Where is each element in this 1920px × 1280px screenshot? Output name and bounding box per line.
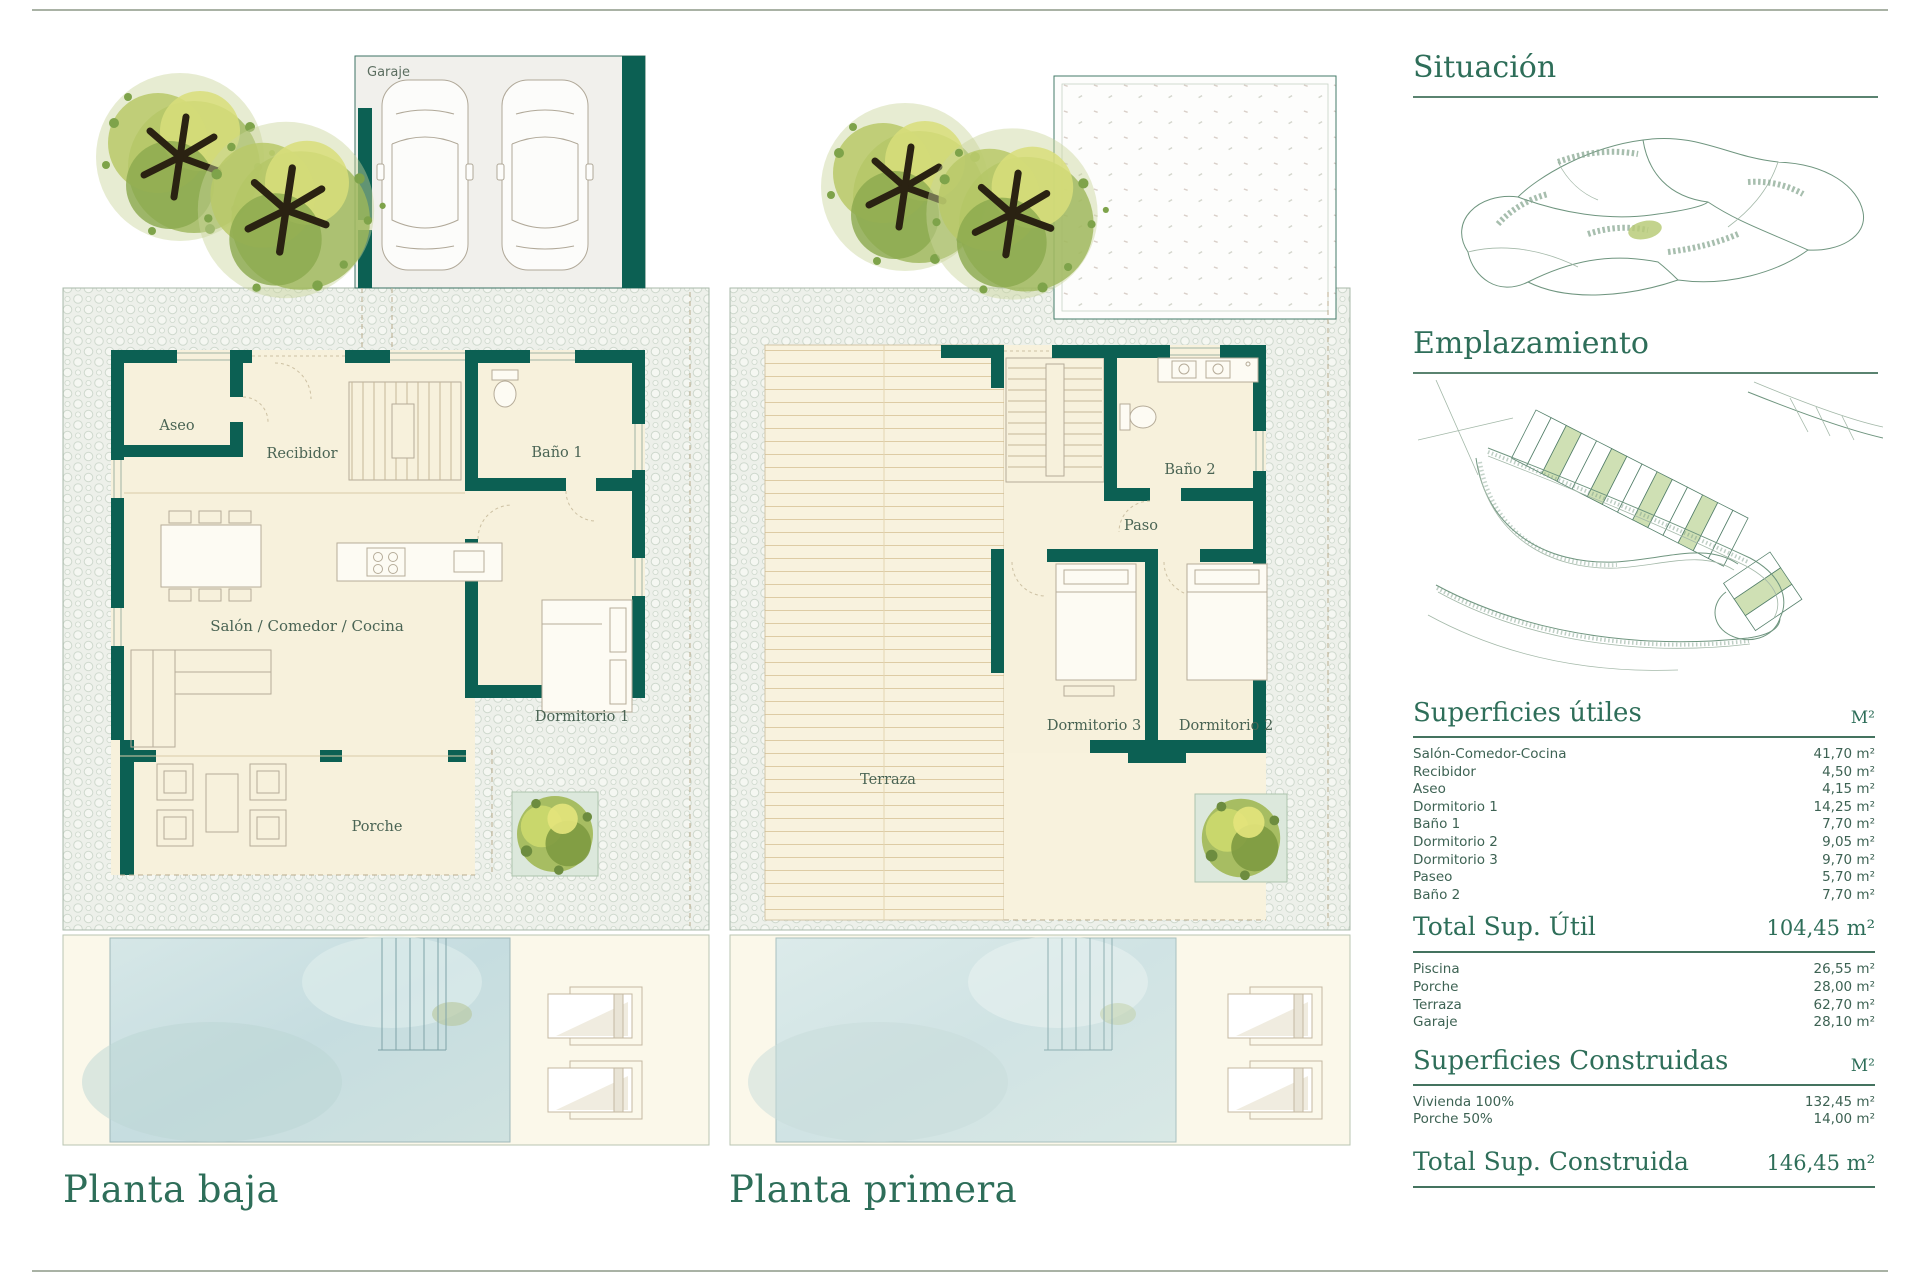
table-row: Baño 17,70 m² xyxy=(1413,816,1875,834)
table-row: Dormitorio 39,70 m² xyxy=(1413,852,1875,870)
brochure-page: Garaje xyxy=(0,0,1920,1280)
room-label-bano1: Baño 1 xyxy=(531,445,582,461)
superficies-construidas-rows: Vivienda 100%132,45 m² Porche 50%14,00 m… xyxy=(1413,1086,1875,1133)
first-floor-plan: Terraza Baño 2 Paso Dormitorio 3 Dormito… xyxy=(728,52,1378,1152)
table-row: Vivienda 100%132,45 m² xyxy=(1413,1094,1875,1112)
plan-title-first: Planta primera xyxy=(729,1168,1017,1211)
table-row: Dormitorio 29,05 m² xyxy=(1413,834,1875,852)
car-icon xyxy=(377,80,473,270)
lounger-icon xyxy=(1228,987,1322,1045)
situacion-map xyxy=(1408,102,1888,317)
room-label-dormitorio3: Dormitorio 3 xyxy=(1047,718,1141,734)
table-row: Porche28,00 m² xyxy=(1413,979,1875,997)
emplazamiento-title: Emplazamiento xyxy=(1413,326,1649,361)
first-pool-area xyxy=(730,935,1350,1145)
table-row: Porche 50%14,00 m² xyxy=(1413,1111,1875,1129)
ground-floor-plan: Garaje xyxy=(62,52,712,1152)
lounger-icon xyxy=(548,1061,642,1119)
situacion-rule xyxy=(1413,96,1878,98)
room-label-dormitorio2: Dormitorio 2 xyxy=(1179,718,1273,734)
surface-tables: Superficies útiles M² Salón-Comedor-Coci… xyxy=(1413,698,1875,1188)
emplazamiento-rule xyxy=(1413,372,1878,374)
room-label-paso: Paso xyxy=(1124,518,1158,534)
table-row: Paseo5,70 m² xyxy=(1413,869,1875,887)
situacion-title: Situación xyxy=(1413,50,1556,85)
table-row: Recibidor4,50 m² xyxy=(1413,764,1875,782)
top-rule xyxy=(32,9,1888,11)
table-row: Salón-Comedor-Cocina41,70 m² xyxy=(1413,746,1875,764)
total-sup-util: Total Sup. Útil 104,45 m² xyxy=(1413,908,1875,953)
superficies-utiles-title: Superficies útiles xyxy=(1413,698,1642,728)
garage-roof xyxy=(1054,76,1336,319)
table-row: Garaje28,10 m² xyxy=(1413,1014,1875,1032)
room-label-recibidor: Recibidor xyxy=(266,446,337,462)
table-row: Dormitorio 114,25 m² xyxy=(1413,799,1875,817)
superficies-construidas-title: Superficies Construidas xyxy=(1413,1046,1728,1076)
car-icon xyxy=(497,80,593,270)
emplazamiento-map xyxy=(1418,380,1883,675)
superficies-utiles-header: Superficies útiles M² xyxy=(1413,698,1875,738)
total-sup-construida: Total Sup. Construida 146,45 m² xyxy=(1413,1143,1875,1188)
plan-title-ground: Planta baja xyxy=(63,1168,279,1211)
superficies-construidas-unit: M² xyxy=(1851,1056,1875,1076)
superficies-utiles-rows: Salón-Comedor-Cocina41,70 m² Recibidor4,… xyxy=(1413,738,1875,908)
superficies-construidas-header: Superficies Construidas M² xyxy=(1413,1046,1875,1086)
table-row: Piscina26,55 m² xyxy=(1413,961,1875,979)
superficies-exteriores-rows: Piscina26,55 m² Porche28,00 m² Terraza62… xyxy=(1413,953,1875,1035)
room-label-bano2: Baño 2 xyxy=(1164,462,1215,478)
bottom-rule xyxy=(32,1270,1888,1272)
room-label-aseo: Aseo xyxy=(158,418,194,434)
ground-pool-area xyxy=(63,935,709,1145)
room-label-porche: Porche xyxy=(352,819,403,835)
superficies-utiles-unit: M² xyxy=(1851,708,1875,728)
garage-label: Garaje xyxy=(367,65,410,80)
lounger-icon xyxy=(548,987,642,1045)
table-row: Terraza62,70 m² xyxy=(1413,997,1875,1015)
room-label-terraza: Terraza xyxy=(860,772,916,788)
lounger-icon xyxy=(1228,1061,1322,1119)
table-row: Aseo4,15 m² xyxy=(1413,781,1875,799)
room-label-salon: Salón / Comedor / Cocina xyxy=(210,617,404,635)
table-row: Baño 27,70 m² xyxy=(1413,887,1875,905)
room-label-dormitorio1: Dormitorio 1 xyxy=(535,709,629,725)
